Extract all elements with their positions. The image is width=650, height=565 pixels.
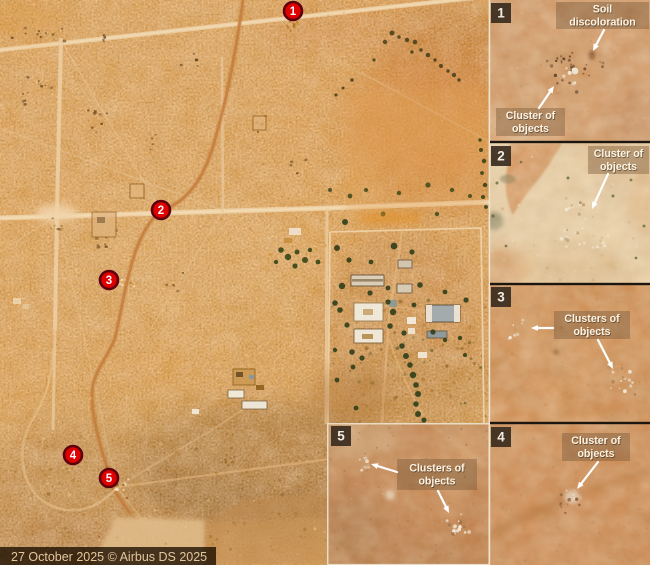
svg-text:2: 2	[158, 205, 164, 217]
svg-text:27 October 2025 © Airbus DS 20: 27 October 2025 © Airbus DS 2025	[11, 550, 207, 564]
svg-text:Soil: Soil	[593, 4, 612, 16]
svg-text:objects: objects	[512, 123, 549, 135]
svg-text:Cluster of: Cluster of	[571, 435, 621, 447]
svg-text:3: 3	[106, 275, 112, 287]
svg-text:4: 4	[70, 450, 77, 462]
svg-text:5: 5	[106, 473, 113, 485]
svg-text:1: 1	[497, 6, 505, 21]
svg-text:objects: objects	[600, 161, 637, 173]
svg-text:1: 1	[290, 6, 297, 18]
svg-text:Cluster of: Cluster of	[594, 148, 644, 160]
svg-text:5: 5	[337, 429, 345, 444]
svg-text:Cluster of: Cluster of	[506, 110, 556, 122]
svg-text:objects: objects	[577, 448, 614, 460]
svg-text:objects: objects	[418, 476, 455, 488]
svg-text:4: 4	[497, 430, 505, 445]
svg-text:discoloration: discoloration	[569, 17, 636, 29]
svg-text:Clusters of: Clusters of	[409, 463, 465, 475]
svg-text:objects: objects	[573, 326, 610, 338]
svg-text:2: 2	[497, 149, 505, 164]
svg-text:3: 3	[497, 290, 505, 305]
svg-text:Clusters of: Clusters of	[564, 313, 620, 325]
